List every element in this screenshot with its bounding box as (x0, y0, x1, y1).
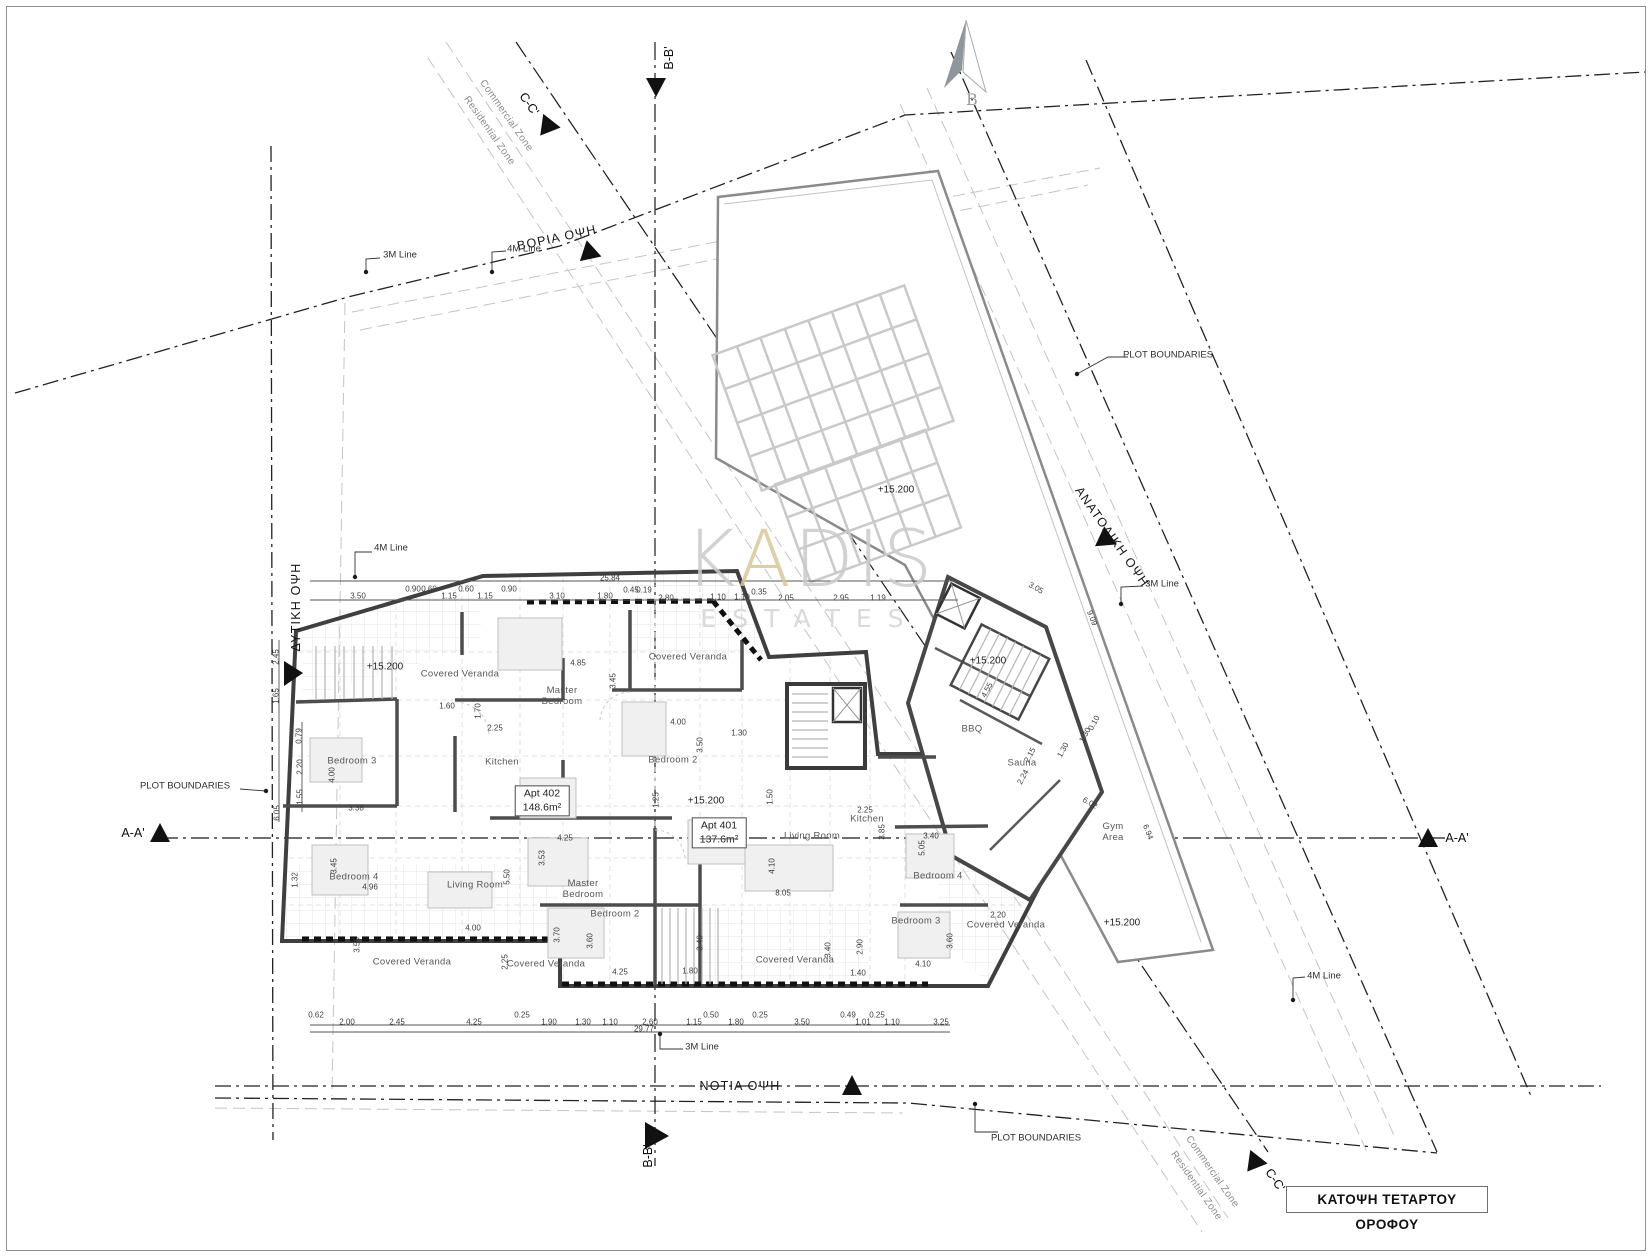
leader-label: 3M Line (685, 1043, 719, 1054)
dimension-label: 4.25 (557, 833, 573, 842)
dimension-label: 0.60 (458, 584, 474, 593)
section-label: A-A' (121, 826, 144, 840)
dimension-label: 4.96 (362, 882, 378, 891)
dimension-label: 2.90 (855, 939, 864, 955)
dimension-label: 4.00 (465, 923, 481, 932)
dimension-label: 1.15 (477, 591, 493, 600)
leader-label: 3M Line (1145, 580, 1179, 591)
dimension-label: 3.25 (933, 1017, 949, 1026)
room-label: Sauna (1008, 759, 1037, 770)
dimension-label: 0.19 (636, 585, 652, 594)
room-label: Covered Veranda (507, 960, 585, 971)
dimension-label: 3.55 (352, 937, 361, 953)
dimension-label: 3.50 (695, 737, 704, 753)
dimension-label: 4.85 (570, 658, 586, 667)
room-label: Living Room (447, 881, 503, 892)
spot-elevation-label: +15.200 (688, 795, 724, 807)
dimension-label: 3.70 (552, 927, 561, 943)
leader-label: PLOT BOUNDARIES (991, 1134, 1081, 1145)
dimension-label: 3.10 (549, 591, 565, 600)
room-label: Kitchen (485, 758, 519, 769)
dimension-label: 2.00 (339, 1017, 355, 1026)
dimension-label: 1.40 (850, 968, 866, 977)
dimension-label: 0.90 (405, 584, 421, 593)
leader-label: PLOT BOUNDARIES (1123, 351, 1213, 362)
apartment-name: Apt 401 (700, 819, 739, 833)
dimension-label: 3.40 (923, 831, 939, 840)
dimension-label: 2.20 (295, 759, 304, 775)
dimension-label: 2.45 (389, 1017, 405, 1026)
dimension-label: 2.25 (487, 723, 503, 732)
section-label: A-A' (1445, 831, 1468, 845)
dimension-label: 0.35 (751, 587, 767, 596)
dimension-label: 1.90 (541, 1017, 557, 1026)
dimension-label: 2.05 (778, 593, 794, 602)
dimension-label: 1.10 (710, 592, 726, 601)
dimension-label: 1.50 (765, 789, 774, 805)
dimension-label: 2.20 (990, 910, 1006, 919)
dimension-label: 0.49 (840, 1010, 856, 1019)
leader-label: 4M Line (507, 245, 541, 256)
dimension-label: 1.65 (271, 688, 280, 704)
dimension-label: 1.70 (473, 703, 482, 719)
facade-label: ΔΥΤΙΚΗ ΟΨΗ (289, 563, 303, 652)
dimension-label: 1.19 (870, 593, 886, 602)
drawing-title: ΚΑΤΟΨΗ ΤΕΤΑΡΤΟΥ ΟΡΟΦΟΥ (1286, 1186, 1488, 1213)
room-label: Bedroom 3 (891, 917, 940, 928)
dimension-label: 1.55 (295, 789, 304, 805)
apartment-area: 137.6m² (700, 833, 739, 847)
north-arrow-label: B (966, 90, 978, 109)
floor-plan-canvas: KADIS ESTATES B Apt 402 148.6m² Apt 401 … (0, 0, 1652, 1257)
dimension-label: 0.90 (501, 584, 517, 593)
dimension-label: 4.00 (670, 717, 686, 726)
dimension-label: 0.62 (308, 1010, 324, 1019)
dimension-label: 2.60 (642, 1017, 658, 1026)
dimension-label: 1.80 (682, 966, 698, 975)
north-arrow-icon (944, 20, 986, 92)
dimension-label: 0.25 (514, 1010, 530, 1019)
room-label: Covered Veranda (756, 956, 834, 967)
dimension-label: 3.53 (537, 850, 546, 866)
dimension-label: 1.15 (686, 1017, 702, 1026)
dimension-label: 1.60 (439, 701, 455, 710)
room-label: Bedroom 2 (648, 756, 697, 767)
room-label: Covered Veranda (373, 958, 451, 969)
apartment-tag-402: Apt 402 148.6m² (515, 785, 570, 816)
spot-elevation-label: +15.200 (970, 655, 1006, 667)
room-label: BBQ (962, 725, 983, 736)
stair-core (787, 684, 865, 768)
dimension-label: 1.25 (651, 792, 660, 808)
room-label: Gym Area (1102, 822, 1123, 844)
room-label: Covered Veranda (649, 653, 727, 664)
room-label: Covered Veranda (967, 921, 1045, 932)
spot-elevation-label: +15.200 (367, 661, 403, 673)
dimension-label: 6.05 (272, 805, 281, 821)
room-label: Master Bedroom (542, 686, 583, 708)
leader-label: PLOT BOUNDARIES (140, 782, 230, 793)
room-label: Master Bedroom (563, 879, 604, 901)
dimension-label: 3.50 (794, 1017, 810, 1026)
dimension-label: 2.95 (833, 593, 849, 602)
dimension-label: 4.10 (767, 858, 776, 874)
dimension-label: 2.45 (271, 649, 280, 665)
spot-elevation-label: +15.200 (878, 484, 914, 496)
dimension-label: 1.10 (602, 1017, 618, 1026)
facade-label: ΝΟΤΙΑ ΟΨΗ (700, 1079, 781, 1093)
room-label: Kitchen (850, 815, 884, 826)
leader-label: 3M Line (383, 251, 417, 262)
apartment-tag-401: Apt 401 137.6m² (692, 817, 747, 848)
dimension-label: 3.50 (350, 591, 366, 600)
dimension-label: 1.10 (734, 592, 750, 601)
dimension-label: 8.05 (775, 888, 791, 897)
room-label: Bedroom 2 (590, 910, 639, 921)
dimension-label: 5.05 (917, 840, 926, 856)
dimension-label: 3.45 (608, 673, 617, 689)
dimension-label: 1.32 (290, 872, 299, 888)
dimension-label: 25.84 (600, 573, 620, 582)
plan-drawing (0, 0, 1652, 1257)
dimension-label: 3.38 (348, 803, 364, 812)
dimension-label: 1.80 (597, 591, 613, 600)
dimension-label: 1.10 (884, 1017, 900, 1026)
dimension-label: 4.00 (327, 767, 336, 783)
dimension-label: 1.15 (441, 591, 457, 600)
dimension-label: 0.25 (752, 1010, 768, 1019)
dimension-label: 3.85 (877, 824, 886, 840)
dimension-label: 0.50 (703, 1010, 719, 1019)
dimension-label: 0.79 (294, 728, 303, 744)
room-label: Covered Veranda (421, 670, 499, 681)
dimension-label: 1.30 (731, 728, 747, 737)
leader-label: 4M Line (374, 544, 408, 555)
section-label: B-B' (662, 46, 676, 69)
leader-label: 4M Line (1307, 972, 1341, 983)
dimension-label: 0.60 (421, 584, 437, 593)
dimension-label: 5.50 (502, 869, 511, 885)
dimension-label: 4.10 (915, 959, 931, 968)
apartment-name: Apt 402 (523, 787, 562, 801)
dimension-label: 1.80 (728, 1017, 744, 1026)
room-label: Bedroom 3 (327, 757, 376, 768)
room-label: Bedroom 4 (329, 873, 378, 884)
dimension-label: 3.60 (585, 933, 594, 949)
dimension-label: 3.60 (945, 933, 954, 949)
apartment-area: 148.6m² (523, 801, 562, 815)
dimension-label: 2.80 (658, 593, 674, 602)
section-label: B-B' (641, 1144, 655, 1167)
dimension-label: 1.30 (575, 1017, 591, 1026)
spot-elevation-label: +15.200 (1104, 917, 1140, 929)
dimension-label: 4.25 (466, 1017, 482, 1026)
room-label: Living Room (784, 832, 840, 843)
dimension-label: 3.40 (695, 935, 704, 951)
room-label: Bedroom 4 (913, 872, 962, 883)
dimension-label: 0.25 (869, 1010, 885, 1019)
dimension-label: 4.25 (612, 967, 628, 976)
